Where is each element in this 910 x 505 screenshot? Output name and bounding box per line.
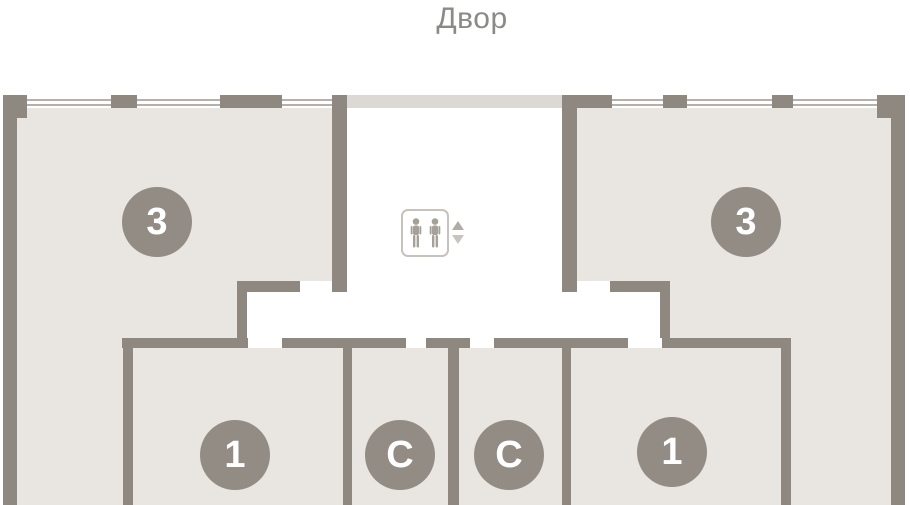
elevator-icon <box>401 209 449 257</box>
corridor <box>247 292 347 338</box>
window <box>793 95 877 108</box>
window <box>27 95 111 108</box>
door-opening <box>248 338 282 348</box>
wall <box>494 338 628 348</box>
window <box>137 95 220 108</box>
wall <box>610 281 670 292</box>
wall <box>663 95 687 108</box>
wall <box>562 95 577 292</box>
apartment-area <box>3 338 133 505</box>
wall <box>891 95 905 505</box>
wall <box>220 95 282 108</box>
apartment-area <box>781 338 905 505</box>
unit-badge[interactable]: 1 <box>200 420 270 490</box>
wall <box>562 348 571 505</box>
elevator-direction-arrows <box>452 221 464 244</box>
wall <box>237 292 247 338</box>
wall <box>426 338 470 348</box>
wall <box>3 95 27 118</box>
door-opening <box>300 281 332 292</box>
unit-badge[interactable]: 1 <box>637 417 707 487</box>
wall <box>237 281 300 292</box>
up-arrow-icon <box>452 221 464 230</box>
window <box>282 95 332 108</box>
door-opening <box>628 338 662 348</box>
window <box>612 95 663 108</box>
window <box>687 95 772 108</box>
wall <box>3 95 17 505</box>
wall <box>122 338 248 348</box>
corridor <box>562 292 662 338</box>
wall <box>343 348 352 505</box>
door-opening <box>406 338 426 348</box>
wall <box>662 338 790 348</box>
unit-badge[interactable]: С <box>365 420 435 490</box>
person-icon <box>428 218 442 248</box>
unit-badge[interactable]: 3 <box>711 187 781 257</box>
corridor-band <box>347 95 562 108</box>
unit-badge[interactable]: 3 <box>122 187 192 257</box>
wall <box>282 338 406 348</box>
wall <box>111 95 137 108</box>
person-icon <box>409 218 423 248</box>
door-opening <box>470 338 494 348</box>
wall <box>660 292 670 338</box>
floor-plan: Двор <box>0 0 910 505</box>
wall <box>123 338 133 505</box>
down-arrow-icon <box>452 235 464 244</box>
wall <box>332 95 347 292</box>
wall <box>448 348 459 505</box>
unit-badge[interactable]: С <box>474 420 544 490</box>
courtyard-label: Двор <box>0 2 910 36</box>
wall <box>781 338 791 505</box>
door-opening <box>577 281 610 292</box>
wall <box>877 95 905 118</box>
wall <box>772 95 793 108</box>
